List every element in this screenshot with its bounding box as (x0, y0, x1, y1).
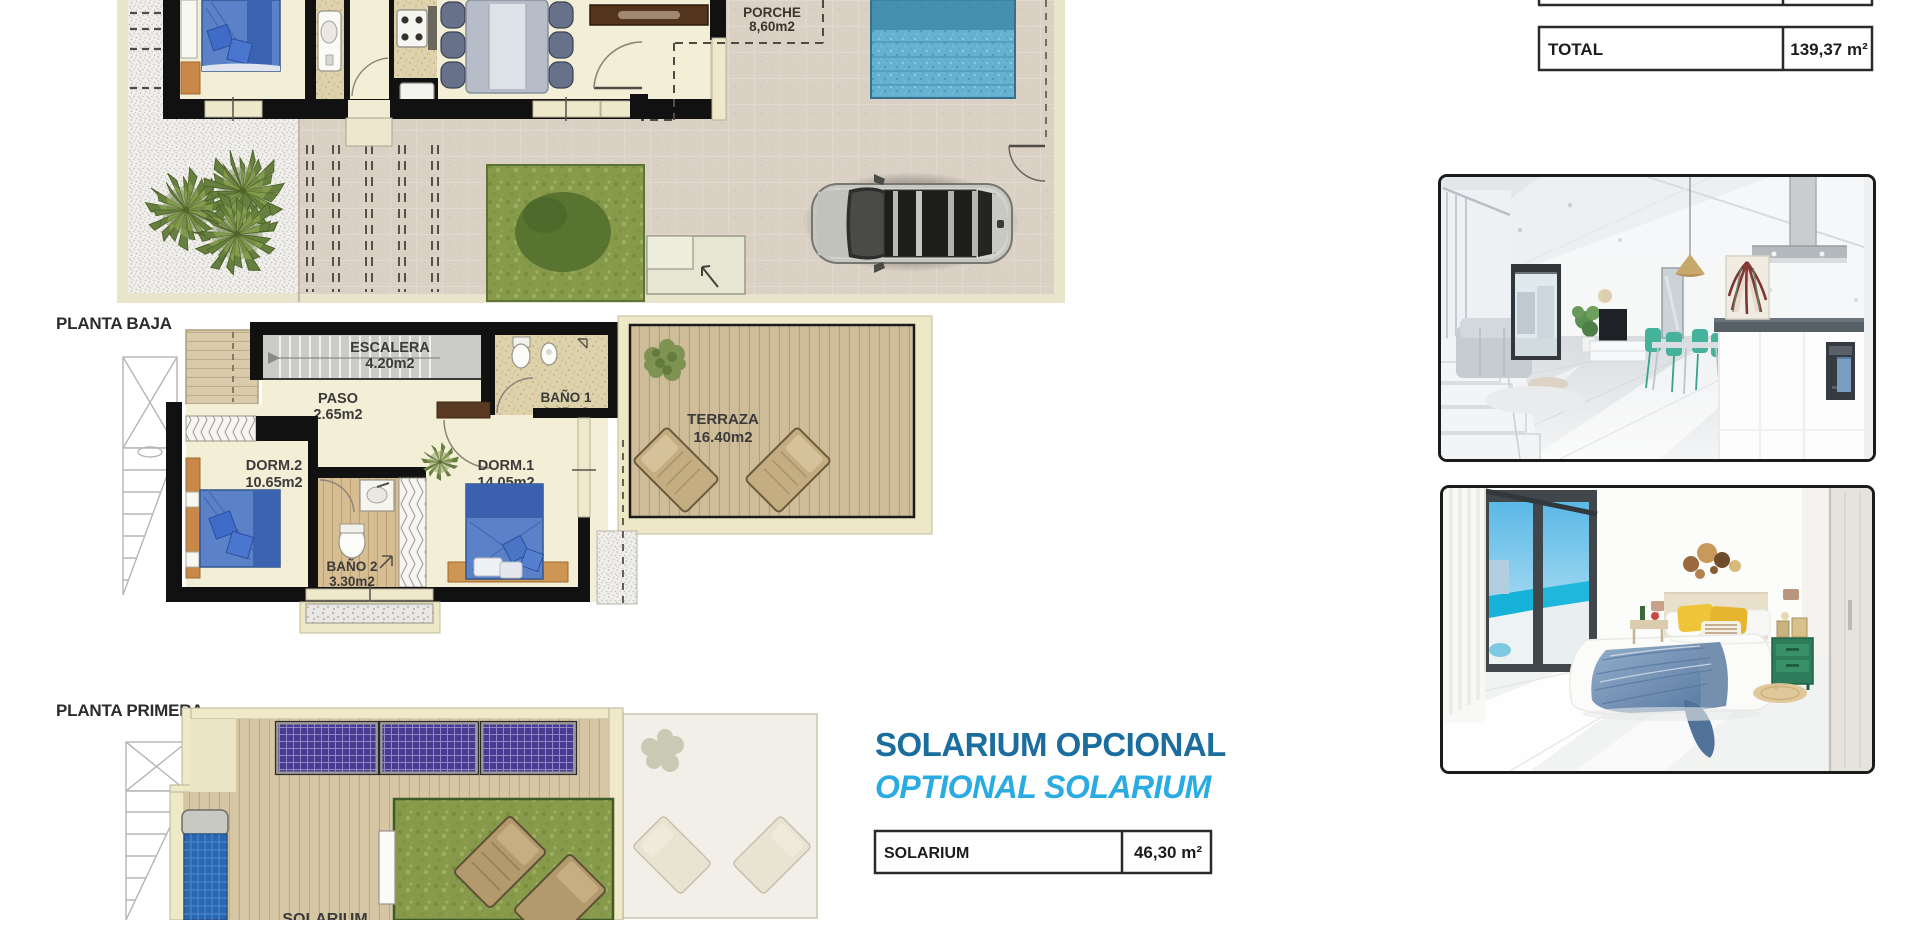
svg-text:16.40m2: 16.40m2 (693, 429, 752, 446)
svg-text:TOTAL: TOTAL (1548, 40, 1603, 59)
svg-text:PLANTA PRIMERA: PLANTA PRIMERA (56, 701, 203, 720)
svg-text:ESCALERA: ESCALERA (350, 340, 430, 356)
svg-text:SOLARIUM: SOLARIUM (282, 911, 367, 920)
svg-text:139,37 m²: 139,37 m² (1790, 40, 1868, 59)
svg-text:DORM.2: DORM.2 (246, 458, 302, 474)
svg-text:TERRAZA: TERRAZA (687, 411, 759, 428)
svg-text:BAÑO 2: BAÑO 2 (326, 559, 377, 574)
svg-text:46,30 m²: 46,30 m² (1134, 843, 1202, 862)
svg-text:8,60m2: 8,60m2 (749, 19, 795, 34)
svg-text:3.30m2: 3.30m2 (329, 574, 375, 589)
svg-text:BAÑO 1: BAÑO 1 (540, 390, 591, 405)
svg-text:4.20m2: 4.20m2 (365, 356, 414, 372)
svg-text:DORM.1: DORM.1 (478, 458, 534, 474)
svg-text:PASO: PASO (318, 391, 358, 407)
svg-text:OPTIONAL SOLARIUM: OPTIONAL SOLARIUM (875, 769, 1213, 805)
svg-text:SOLARIUM OPCIONAL: SOLARIUM OPCIONAL (875, 726, 1226, 763)
svg-text:SOLARIUM: SOLARIUM (884, 845, 969, 862)
svg-text:2.65m2: 2.65m2 (313, 407, 362, 423)
svg-text:10.65m2: 10.65m2 (245, 475, 302, 491)
svg-text:PLANTA BAJA: PLANTA BAJA (56, 314, 172, 333)
svg-text:PORCHE: PORCHE (743, 5, 801, 20)
